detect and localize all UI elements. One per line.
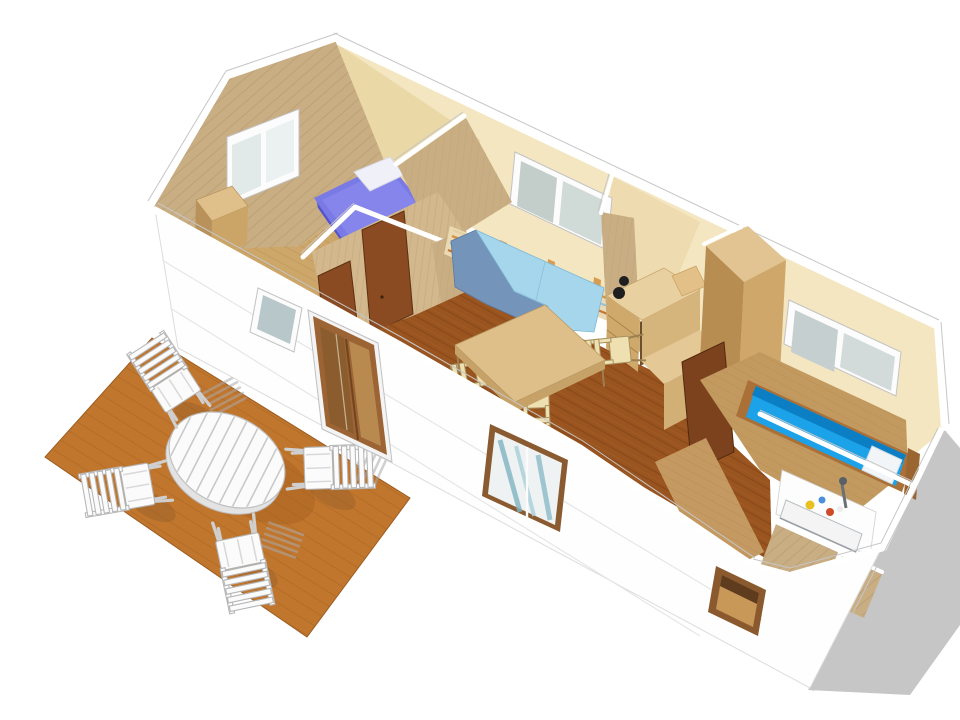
hall-door (362, 211, 413, 334)
toiletry (806, 501, 815, 510)
lamp-black (619, 276, 629, 286)
door-knob (380, 295, 383, 298)
faucet-head (839, 477, 847, 485)
render-canvas (0, 0, 960, 720)
lamp-black (613, 287, 625, 299)
toiletry (826, 508, 834, 516)
toiletry (819, 497, 826, 504)
floorplan-render (0, 0, 960, 720)
toiletry (837, 506, 843, 512)
